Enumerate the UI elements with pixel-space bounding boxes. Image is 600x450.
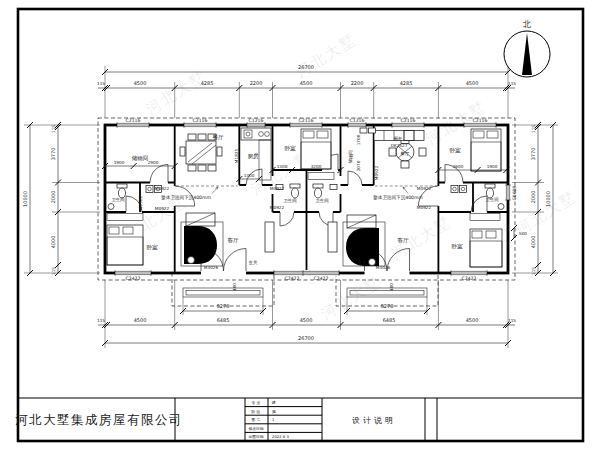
field-label: 阶 段 [252,409,261,414]
dim-label: 115 [531,125,536,133]
door-label: M0922 [155,206,170,211]
window-label: C2116 [193,118,208,123]
dim-interior: 3200 [311,164,322,169]
dim-label: 2200 [351,80,364,86]
door-label: M3026 [376,265,391,270]
door-label: M0922 [417,186,432,191]
dim-label: 4500 [466,80,479,86]
dim-porch: 5278 [381,303,394,309]
dim-interior: 2900 [148,160,159,165]
field-value: 建 [271,400,276,405]
dim-interior: 1900 [114,160,125,165]
dim-left-total: 10000 [22,191,28,207]
dim-interior: 1700 [356,134,361,145]
room-label-living: 客厅 [227,237,239,244]
room-label-bath: 卫生间 [110,197,124,203]
room-label-dining: 餐厅 [401,151,410,156]
sunken-note: 整体卫浴间下沉400mm [373,195,423,201]
dim-label: 3770 [530,148,536,161]
drawing-sheet: 河北大墅 河北大墅 河北大墅 河北大墅 河北大墅 河北大墅 河北大墅 河北大墅 … [0,0,600,450]
dim-interior: 1900 [487,164,498,169]
room-label-bedroom: 卧室 [284,145,296,151]
watermark-text: 河北大墅 [143,67,210,118]
window-symbol [348,122,366,128]
room-label-living: 客厅 [397,237,409,244]
room-label-entry: 玄关 [358,260,367,265]
window-label: C2116 [401,118,416,123]
window-symbol [115,270,151,276]
room-label-entry: 玄关 [249,260,258,265]
drawing-title: 设计说明 [352,416,396,425]
compass-needle-icon [522,33,532,75]
door-label: M0922 [155,186,170,191]
dim-label: 6485 [217,317,230,323]
dim-interior: 2070 [356,160,361,171]
dim-label: 2000 [530,191,536,204]
dim-label: 115 [508,318,516,323]
field-label: 出图日期 [248,434,263,439]
watermark-text: 河北大墅 [293,30,360,81]
title-block: 河北大墅集成房屋有限公司 设计说明 专 业 建 阶 段 施 图 号 1 修改日期… [15,398,583,441]
piano-icon [181,222,223,266]
dim-label: 115 [51,267,56,275]
dim-label: 4000 [50,236,56,249]
room-label-dining: 餐厅 [212,134,224,140]
dim-offset: 500 [519,231,527,236]
dim-right-total: 10000 [545,191,551,207]
room-label-bath: 卫生间 [314,198,328,204]
room-label-bath: 卫生间 [282,198,296,204]
window-symbol [392,122,424,128]
door-label: M0922 [138,196,143,211]
dim-step: 400 [232,283,237,291]
dim-label: 115 [97,81,105,86]
tv-cabinet-icon [328,222,337,252]
field-value: 2022 8 3 [272,434,289,439]
company-name: 河北大墅集成房屋有限公司 [15,413,183,427]
tv-cabinet-icon [265,222,274,252]
field-label: 图 号 [252,417,261,422]
cabinet-icon [360,128,424,141]
field-value: 施 [272,409,276,414]
cabinet-model-label: DK2527 [391,143,408,148]
door-label: M0922 [417,205,432,210]
dim-label: 3770 [50,148,56,161]
window-label: C0609 [512,185,517,200]
door-label: M1825 [234,149,239,164]
dim-label: 4285 [400,80,413,86]
window-symbol [247,122,265,128]
dim-label: 4285 [201,80,214,86]
window-symbol [184,122,216,128]
dim-step: 400 [389,283,394,291]
dim-interior: 1300 [244,173,255,178]
cabinet-label: 橱柜 [394,136,403,141]
door-label: M0922 [270,186,285,191]
bed-icon [107,225,143,265]
dim-top-total: 26700 [298,64,314,70]
dim-label: 4500 [466,317,479,323]
field-value: 1 [272,417,275,422]
north-arrow: 北 [504,20,550,77]
dim-bottom-total: 26700 [298,335,314,341]
north-label: 北 [522,20,531,29]
window-label: C2422 [126,276,141,281]
room-label-bedroom: 卧室 [146,244,158,250]
floor-plan-drawing: 河北大墅 河北大墅 河北大墅 河北大墅 河北大墅 河北大墅 河北大墅 河北大墅 … [0,0,600,450]
dim-label: 2000 [50,191,56,204]
dim-label: 6485 [383,317,396,323]
dim-label: 4500 [134,80,147,86]
porch-left-outline [172,273,274,306]
window-label: C2422 [314,276,329,281]
window-label: C2116 [299,118,314,123]
dim-label: 2200 [250,80,263,86]
window-symbol [451,270,487,276]
title-block-fields: 专 业 建 阶 段 施 图 号 1 修改日期 出图日期 2022 8 3 [248,400,289,439]
wardrobe-icon [308,173,334,180]
dim-interior: 1300 [277,164,288,169]
door-label: M3026 [204,265,219,270]
dim-label: 4500 [300,80,313,86]
window-symbol [505,185,511,200]
door-label: M0922 [374,166,379,181]
window-symbol [117,122,149,128]
room-label-kitchen: 厨房 [247,153,259,159]
room-label-storage: 储物间 [132,155,149,162]
window-label: C2422 [285,276,300,281]
field-label: 专 业 [252,400,261,405]
dim-label: 4500 [300,317,313,323]
door-label: M0922 [270,205,285,210]
dim-label: 115 [97,318,105,323]
window-label: C1216 [350,118,365,123]
window-symbol [303,270,339,276]
window-symbol [290,122,322,128]
bed-icon [470,229,502,267]
window-label: C2116 [126,118,141,123]
window-label: C2422 [462,276,477,281]
dim-porch: 5278 [217,303,230,309]
dim-label: 4500 [134,317,147,323]
room-label-bedroom: 卧室 [449,147,461,153]
room-label-bedroom: 卧室 [451,243,463,249]
field-label: 修改日期 [248,426,263,431]
dim-label: 4000 [530,236,536,249]
window-label: C2116 [473,118,488,123]
dim-label: 115 [508,81,516,86]
dim-interior: 2600 [453,164,464,169]
window-label: C1216 [249,118,264,123]
dim-label: 115 [51,125,56,133]
dim-label: 115 [531,267,536,275]
watermark-layer: 河北大墅 河北大墅 河北大墅 河北大墅 河北大墅 河北大墅 河北大墅 河北大墅 [123,30,580,323]
room-label-bath: 卫生间 [484,197,498,203]
window-symbol [464,122,496,128]
wardrobe-icon [470,214,500,221]
room-label-storage: 储物间 [348,150,354,163]
